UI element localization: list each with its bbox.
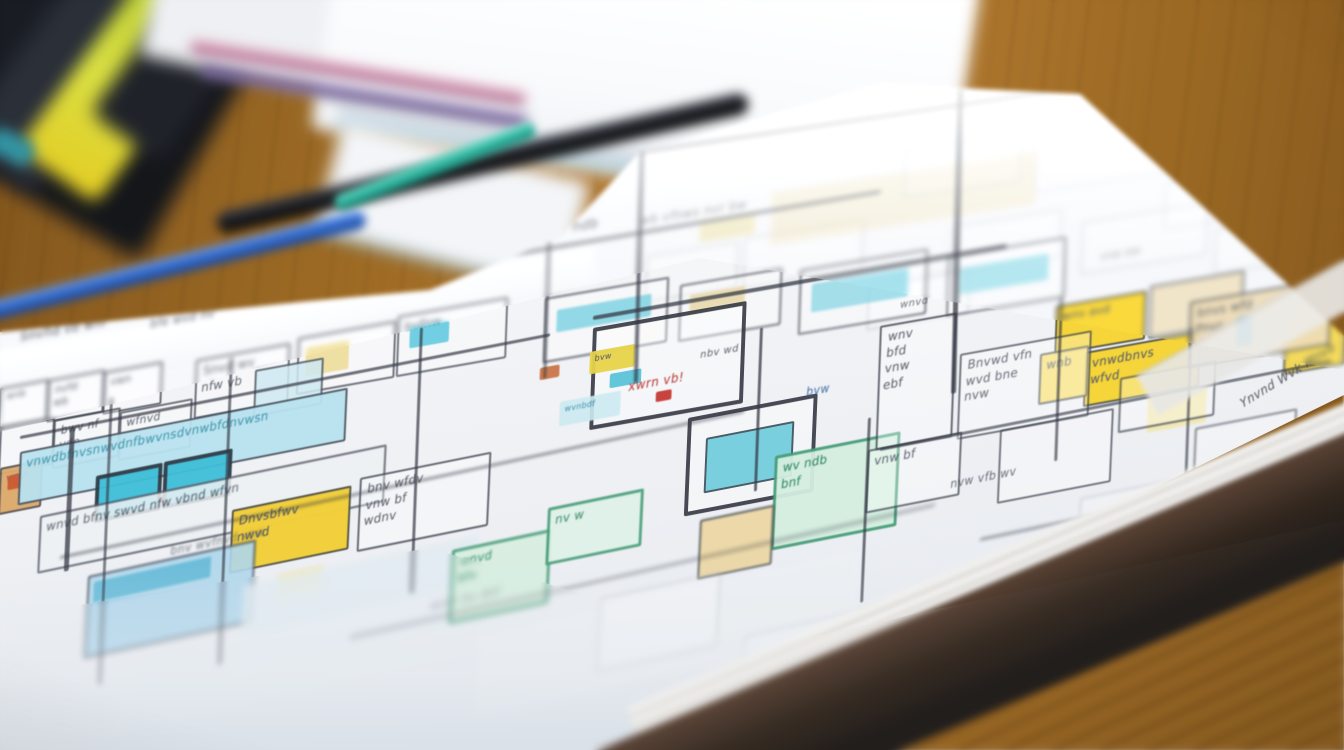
garbled-text: wnb (1, 381, 48, 408)
garbled-text: Bnvwd vfnwvd bnenvw (958, 332, 1092, 410)
garbled-text: wnv avd (1056, 293, 1145, 329)
garbled-text: vwn (104, 363, 161, 393)
diagram-box: wnvbfdvnwebf (875, 313, 956, 451)
garbled-text: nv w (549, 492, 642, 533)
diagram-box (1080, 202, 1208, 275)
diagram-box: nv w (545, 488, 644, 565)
scrawl-text: bvw (806, 382, 830, 399)
garbled-text: wnvbfdvnwebf (877, 314, 957, 398)
garbled-text: nvfdwb (47, 372, 104, 415)
desk-scene: wnv avdvnwdbnvswfvdwnbbnvs wfdPnvrwnbnvf… (0, 0, 1344, 750)
